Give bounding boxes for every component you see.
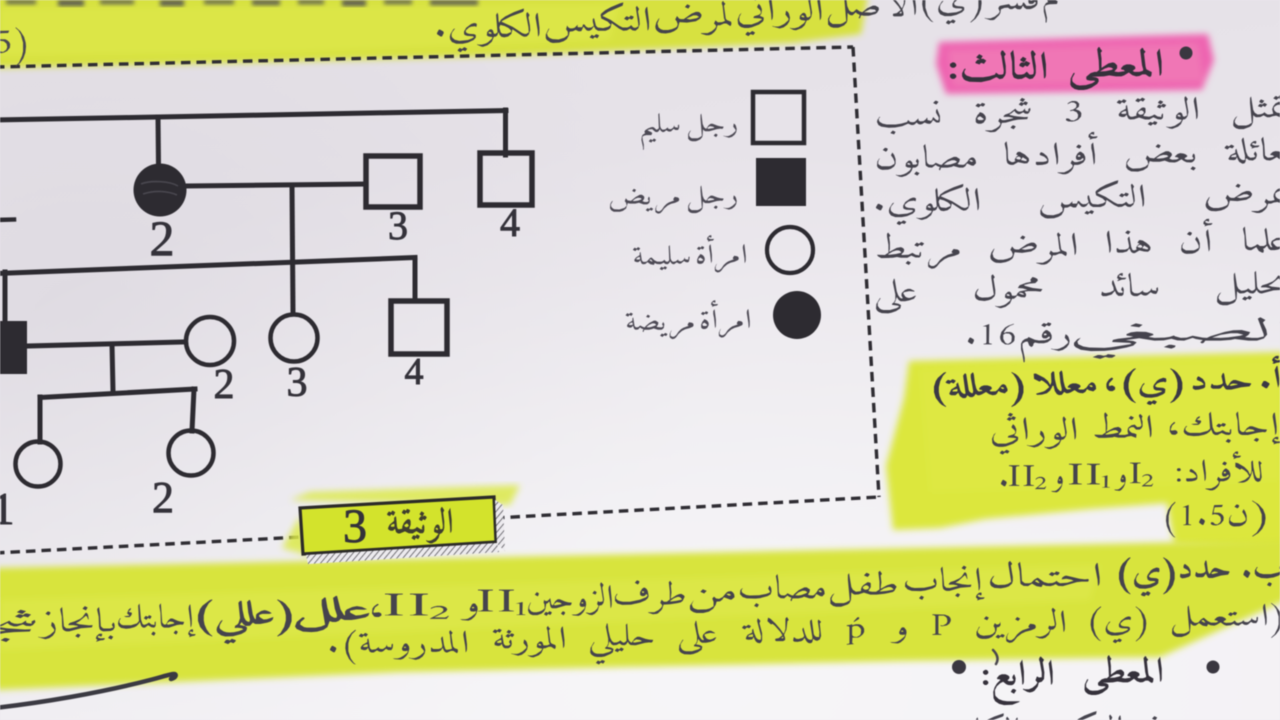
svg-text:4: 4 — [500, 200, 520, 245]
svg-text:1: 1 — [0, 483, 15, 534]
svg-text:4: 4 — [405, 351, 424, 393]
svg-text:3: 3 — [343, 500, 367, 553]
svg-text:3: 3 — [388, 203, 408, 248]
svg-text:2: 2 — [214, 362, 235, 408]
svg-text:3: 3 — [287, 360, 308, 406]
svg-text:2: 2 — [150, 210, 175, 266]
svg-text:2: 2 — [152, 473, 174, 522]
